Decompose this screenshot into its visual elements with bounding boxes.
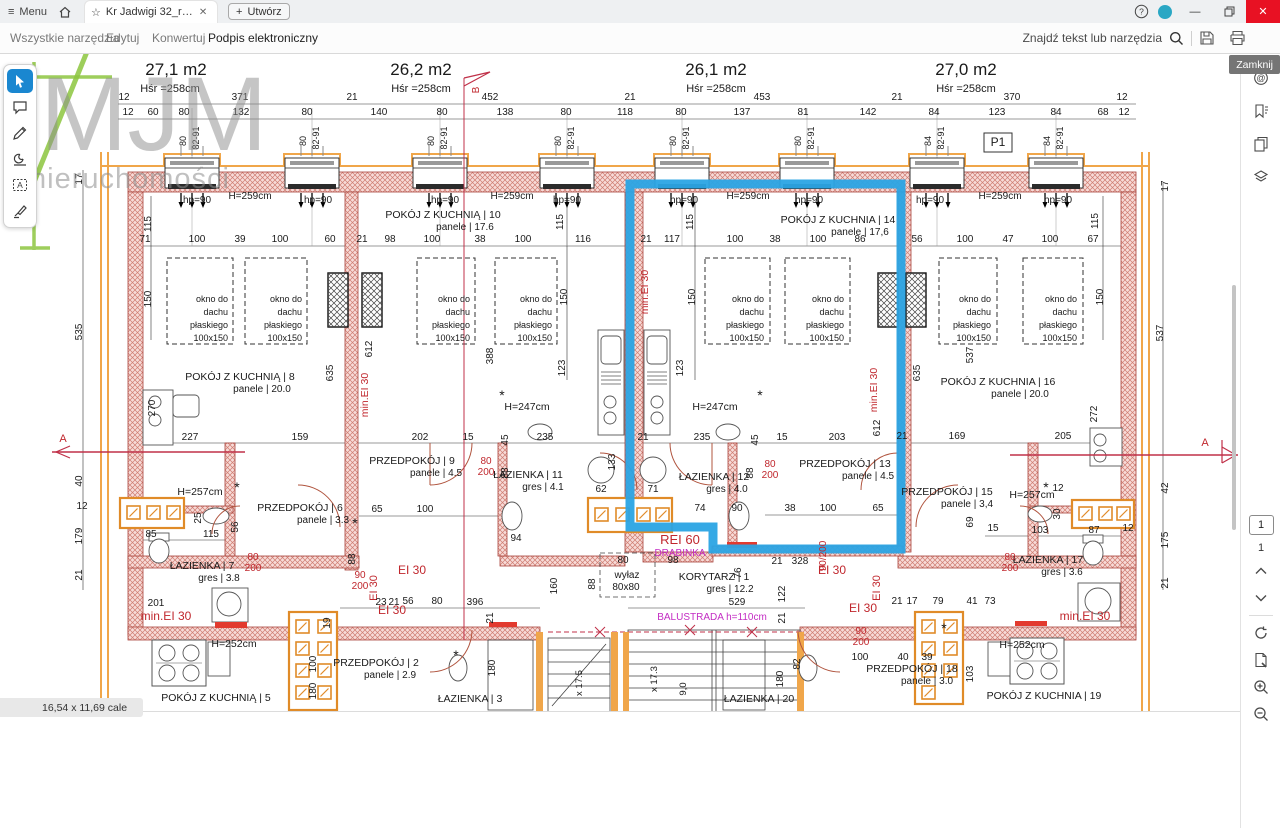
svg-text:dachu: dachu [819,307,844,317]
svg-text:PRZEDPOKÓJ | 6: PRZEDPOKÓJ | 6 [257,501,343,514]
svg-text:H=247cm: H=247cm [504,401,549,413]
svg-text:H=259cm: H=259cm [490,191,533,202]
svg-text:76: 76 [733,567,744,579]
svg-text:wyłaz: wyłaz [613,570,639,581]
svg-text:537: 537 [965,346,976,363]
svg-text:116: 116 [575,234,591,245]
pages-button[interactable] [1250,134,1272,154]
svg-text:12: 12 [1052,483,1064,494]
svg-text:*: * [1043,479,1049,495]
svg-text:POKÓJ Z KUCHNIĄ | 5: POKÓJ Z KUCHNIĄ | 5 [161,691,271,704]
svg-text:60: 60 [324,234,336,245]
tab-title: Kr Jadwigi 32_rzut c... [106,6,194,18]
svg-text:hp=90: hp=90 [670,195,699,206]
svg-text:235: 235 [537,432,554,443]
svg-text:87: 87 [1088,525,1100,536]
svg-text:płaskiego: płaskiego [432,320,470,330]
svg-text:gres | 3.6: gres | 3.6 [1041,567,1083,578]
svg-text:21: 21 [637,432,649,443]
svg-text:115: 115 [203,529,219,540]
svg-text:min.EI 30: min.EI 30 [359,373,371,418]
vertical-scrollbar[interactable] [1232,285,1236,530]
svg-text:ŁAZIENKA | 3: ŁAZIENKA | 3 [438,693,503,705]
svg-text:100x150: 100x150 [956,333,991,343]
svg-text:160: 160 [549,577,560,594]
svg-text:dachu: dachu [1052,307,1077,317]
menu-button[interactable]: ≡ Menu [8,0,47,23]
page-view-icon [1253,652,1269,668]
svg-text:15: 15 [776,432,788,443]
svg-text:123: 123 [675,359,686,376]
svg-text:26,2 m2: 26,2 m2 [390,60,451,79]
svg-text:15: 15 [987,523,999,534]
svg-text:201: 201 [148,598,165,609]
svg-text:min.EI 30: min.EI 30 [141,609,192,623]
svg-text:82-91: 82-91 [191,126,201,149]
pages-icon [1253,136,1269,152]
svg-text:68: 68 [1097,107,1109,118]
svg-text:21: 21 [1160,577,1171,589]
svg-text:dachu: dachu [277,307,302,317]
sign-tool-button[interactable] [7,147,33,171]
svg-text:612: 612 [364,340,375,357]
zoom-in-icon [1253,679,1269,695]
svg-text:panele | 3.0: panele | 3.0 [901,676,954,687]
svg-text:203: 203 [829,432,846,443]
rotate-button[interactable] [1250,623,1272,643]
svg-text:80: 80 [617,555,629,566]
svg-text:płaskiego: płaskiego [264,320,302,330]
svg-text:635: 635 [325,364,336,381]
svg-text:40: 40 [897,652,909,663]
svg-text:PRZEDPOKÓJ | 13: PRZEDPOKÓJ | 13 [799,457,891,470]
svg-text:272: 272 [1089,405,1100,422]
right-rail: @ 1 [1240,55,1280,828]
menu-edit[interactable]: Edytuj [106,23,139,53]
svg-text:138: 138 [497,107,514,118]
svg-text:17: 17 [906,596,918,607]
menu-label: Menu [19,6,47,18]
svg-text:80: 80 [1004,552,1016,563]
svg-text:81: 81 [797,107,809,118]
avatar[interactable] [1148,0,1182,23]
svg-text:H=259cm: H=259cm [726,191,769,202]
svg-text:gres | 12.2: gres | 12.2 [706,584,754,595]
svg-text:82-91: 82-91 [566,126,576,149]
svg-text:200: 200 [853,637,870,648]
svg-text:80: 80 [247,552,259,563]
svg-text:*: * [499,387,505,403]
svg-text:12: 12 [122,107,134,118]
svg-text:47: 47 [1002,234,1014,245]
svg-text:80: 80 [426,136,436,146]
svg-text:x 17.3: x 17.3 [649,666,660,692]
create-button[interactable]: + Utwórz [228,3,290,20]
svg-text:65: 65 [872,503,884,514]
svg-text:21: 21 [74,569,85,581]
rail-divider [1249,615,1273,616]
svg-text:17: 17 [1160,180,1171,192]
svg-text:88: 88 [745,467,756,479]
svg-text:DRABINKA: DRABINKA [654,548,705,559]
svg-text:103: 103 [965,665,976,682]
svg-text:okno do: okno do [959,294,991,304]
svg-text:hp=90: hp=90 [431,195,460,206]
document-size-badge: 16,54 x 11,69 cale [0,698,143,717]
zoom-in-button[interactable] [1250,677,1272,697]
svg-text:180: 180 [775,670,786,687]
svg-text:115: 115 [685,214,696,230]
svg-text:82-91: 82-91 [439,126,449,149]
svg-text:80: 80 [764,459,776,470]
layers-button[interactable] [1250,167,1272,187]
svg-text:115: 115 [143,216,154,232]
svg-text:100: 100 [1042,234,1059,245]
svg-text:84: 84 [1050,107,1062,118]
svg-text:115: 115 [555,214,566,230]
svg-text:panele | 4.5: panele | 4.5 [410,468,463,479]
svg-text:okno do: okno do [196,294,228,304]
draw-tool-button[interactable] [7,121,33,145]
svg-text:100: 100 [417,504,434,515]
svg-text:100x150: 100x150 [193,333,228,343]
page-total: 1 [1258,542,1264,554]
svg-text:27,0 m2: 27,0 m2 [935,60,996,79]
svg-text:gres | 4.1: gres | 4.1 [522,482,564,493]
restore-button[interactable] [1212,0,1246,23]
svg-text:179: 179 [74,527,85,544]
svg-text:84: 84 [1042,136,1052,146]
svg-text:B: B [471,86,482,93]
svg-text:94: 94 [510,533,522,544]
pdf-toolbar: Wszystkie narzędzia Edytuj Konwertuj Pod… [0,23,1280,54]
svg-text:21: 21 [640,234,652,245]
svg-text:80: 80 [178,136,188,146]
svg-text:100: 100 [820,503,837,514]
rotate-icon [1253,625,1269,641]
svg-text:80: 80 [668,136,678,146]
svg-text:80: 80 [178,107,190,118]
svg-text:100x150: 100x150 [729,333,764,343]
comment-tool-button[interactable] [7,95,33,119]
home-icon [58,5,72,19]
printer-icon [1229,30,1246,46]
svg-text:42: 42 [1160,482,1171,494]
svg-text:73: 73 [984,596,996,607]
svg-text:90: 90 [354,570,366,581]
svg-text:90: 90 [731,503,743,514]
svg-text:hp=90: hp=90 [916,195,945,206]
svg-text:POKÓJ Z KUCHNIA | 16: POKÓJ Z KUCHNIA | 16 [941,375,1056,388]
svg-text:EI 30: EI 30 [398,563,426,577]
svg-text:132: 132 [233,107,250,118]
svg-text:56: 56 [230,521,241,533]
search-box[interactable]: Znajdź tekst lub narzędzia [1023,23,1184,53]
svg-text:ŁAZIENKA | 7: ŁAZIENKA | 7 [170,560,235,572]
highlight-tool-button[interactable] [7,199,33,223]
svg-text:9,0: 9,0 [678,682,689,695]
svg-text:dachu: dachu [739,307,764,317]
menu-convert[interactable]: Konwertuj [152,23,205,53]
svg-text:67: 67 [1087,234,1099,245]
text-tool-button[interactable]: A [7,173,33,197]
svg-text:21: 21 [891,596,903,607]
svg-text:200: 200 [352,581,369,592]
svg-text:okno do: okno do [1045,294,1077,304]
svg-text:71: 71 [647,484,659,495]
svg-text:H=247cm: H=247cm [692,401,737,413]
chevron-up-icon [1255,567,1267,575]
svg-text:*: * [352,515,358,531]
svg-text:74: 74 [694,503,706,514]
svg-text:88: 88 [500,467,511,479]
svg-text:235: 235 [694,432,711,443]
svg-text:panele | 20.0: panele | 20.0 [991,389,1049,400]
svg-text:A: A [59,433,67,445]
svg-text:71: 71 [139,234,151,245]
svg-text:123: 123 [989,107,1006,118]
cursor-icon [13,74,27,88]
svg-text:100: 100 [308,655,319,672]
bookmark-icon [1253,103,1269,119]
svg-text:x 17.5: x 17.5 [574,670,585,696]
svg-text:panele | 2.9: panele | 2.9 [364,670,417,681]
svg-text:140: 140 [371,107,388,118]
svg-text:100: 100 [957,234,974,245]
svg-text:12: 12 [118,92,130,103]
svg-text:65: 65 [371,504,383,515]
restore-icon [1224,6,1235,17]
svg-text:100x150: 100x150 [267,333,302,343]
svg-text:H=259cm: H=259cm [228,191,271,202]
svg-text:88: 88 [587,578,598,590]
home-button[interactable] [58,0,72,23]
hamburger-icon: ≡ [8,6,14,18]
tab-close-icon[interactable]: ✕ [199,7,207,18]
plus-icon: + [236,6,242,18]
svg-text:dachu: dachu [527,307,552,317]
svg-text:41: 41 [966,596,978,607]
svg-text:529: 529 [729,597,746,608]
floorplan-canvas[interactable]: 27,1 m2Hśr =258cm26,2 m2Hśr =258cm26,1 m… [0,55,1240,712]
svg-text:A: A [17,180,23,190]
svg-text:hp=90: hp=90 [1044,195,1073,206]
svg-text:dachu: dachu [966,307,991,317]
svg-text:38: 38 [769,234,781,245]
svg-text:panele | 3,4: panele | 3,4 [941,499,994,510]
svg-text:80: 80 [553,136,563,146]
svg-text:98: 98 [384,234,396,245]
svg-text:60: 60 [147,107,159,118]
svg-text:panele | 20.0: panele | 20.0 [233,384,291,395]
svg-text:115: 115 [1090,213,1101,229]
svg-text:117: 117 [664,234,680,245]
toolbar-divider [1191,31,1192,46]
svg-text:202: 202 [412,432,429,443]
svg-text:39: 39 [234,234,246,245]
svg-text:12: 12 [1122,523,1134,534]
svg-text:płaskiego: płaskiego [1039,320,1077,330]
svg-text:123: 123 [557,359,568,376]
svg-text:612: 612 [872,419,883,436]
svg-text:dachu: dachu [203,307,228,317]
svg-text:min.EI 30: min.EI 30 [639,270,651,315]
svg-text:POKÓJ Z KUCHNIĄ | 10: POKÓJ Z KUCHNIĄ | 10 [385,208,500,221]
svg-text:270: 270 [147,399,158,416]
bookmarks-button[interactable] [1250,101,1272,121]
svg-text:*: * [234,479,240,495]
svg-text:635: 635 [912,364,923,381]
svg-text:80: 80 [301,107,313,118]
svg-text:180: 180 [487,659,498,676]
page-number-input[interactable] [1249,515,1274,535]
highlighter-icon [12,203,28,219]
layers-icon [1253,169,1269,185]
svg-text:21: 21 [388,597,400,608]
svg-text:150: 150 [687,288,698,305]
svg-text:200: 200 [762,470,779,481]
svg-text:100: 100 [810,234,827,245]
svg-text:Hśr =258cm: Hśr =258cm [140,83,200,95]
svg-text:62: 62 [595,484,607,495]
svg-text:płaskiego: płaskiego [514,320,552,330]
svg-text:80: 80 [675,107,687,118]
svg-text:ŁAZIENKA | 20: ŁAZIENKA | 20 [724,693,795,705]
svg-text:100x150: 100x150 [1042,333,1077,343]
svg-text:86: 86 [854,234,866,245]
svg-text:hp=90: hp=90 [304,195,333,206]
svg-text:PRZEDPOKÓJ | 15: PRZEDPOKÓJ | 15 [901,485,993,498]
svg-text:21: 21 [624,92,636,103]
svg-text:15: 15 [462,432,474,443]
svg-text:okno do: okno do [270,294,302,304]
svg-text:21: 21 [771,556,783,567]
svg-text:82-91: 82-91 [936,126,946,149]
svg-text:100: 100 [424,234,441,245]
next-page-button[interactable] [1250,588,1272,608]
svg-text:ŁAZIENKA | 17: ŁAZIENKA | 17 [1013,554,1084,566]
svg-text:180: 180 [308,682,319,699]
svg-text:388: 388 [485,347,496,364]
svg-text:@: @ [1256,73,1265,83]
svg-text:12: 12 [76,501,88,512]
svg-text:gres | 4.0: gres | 4.0 [706,484,748,495]
svg-text:537: 537 [1155,324,1166,341]
page-view-button[interactable] [1250,650,1272,670]
svg-text:100: 100 [189,234,206,245]
app-window: { "titlebar": { "menu_label": "Menu", "t… [0,0,1280,828]
search-icon [1169,31,1184,46]
svg-text:panele | 17.6: panele | 17.6 [436,222,494,233]
signature-icon [12,151,28,167]
svg-text:21: 21 [346,92,358,103]
svg-text:H=252cm: H=252cm [999,639,1044,651]
menu-all-tools[interactable]: Wszystkie narzędzia [10,23,119,53]
svg-text:*: * [453,647,459,663]
svg-text:PRZEDPOKÓJ | 2: PRZEDPOKÓJ | 2 [333,656,419,669]
svg-text:80: 80 [436,107,448,118]
save-button[interactable] [1196,28,1218,48]
svg-text:12: 12 [1118,107,1130,118]
zoom-out-button[interactable] [1250,704,1272,724]
svg-text:27,1 m2: 27,1 m2 [145,60,206,79]
previous-page-button[interactable] [1250,561,1272,581]
svg-text:80: 80 [298,136,308,146]
minimize-button[interactable]: — [1178,0,1212,23]
menu-esign[interactable]: Podpis elektroniczny [208,23,318,53]
select-tool-button[interactable] [7,69,33,93]
svg-text:21: 21 [777,612,788,624]
print-button[interactable] [1226,28,1248,48]
left-tools-panel: A [3,64,37,228]
svg-text:137: 137 [734,107,751,118]
svg-text:56: 56 [911,234,923,245]
svg-text:169: 169 [949,431,966,442]
svg-text:17: 17 [74,173,85,185]
svg-text:Hśr =258cm: Hśr =258cm [391,83,451,95]
svg-text:okno do: okno do [520,294,552,304]
create-label: Utwórz [247,6,281,18]
svg-text:EI 30: EI 30 [849,601,877,615]
svg-text:56: 56 [402,596,414,607]
svg-text:płaskiego: płaskiego [953,320,991,330]
svg-text:100: 100 [852,652,869,663]
svg-text:płaskiego: płaskiego [806,320,844,330]
comment-icon [12,99,28,115]
svg-text:142: 142 [860,107,877,118]
svg-text:dachu: dachu [445,307,470,317]
svg-text:gres | 3.8: gres | 3.8 [198,573,240,584]
svg-text:150: 150 [559,288,570,305]
svg-text:PRZEDPOKÓJ | 9: PRZEDPOKÓJ | 9 [369,454,455,467]
help-icon: ? [1134,4,1149,19]
svg-text:panele | 4.5: panele | 4.5 [842,471,895,482]
svg-text:hp=90: hp=90 [183,195,212,206]
svg-text:84: 84 [923,136,933,146]
zoom-out-icon [1253,706,1269,722]
save-icon [1199,30,1215,46]
chevron-down-icon [1255,594,1267,602]
svg-text:40: 40 [74,475,85,487]
svg-text:Hśr =258cm: Hśr =258cm [936,83,996,95]
svg-text:371: 371 [232,92,249,103]
svg-text:H=259cm: H=259cm [978,191,1021,202]
svg-text:39: 39 [921,652,933,663]
document-tab[interactable]: ☆ Kr Jadwigi 32_rzut c... ✕ [84,0,218,23]
svg-text:80: 80 [793,136,803,146]
svg-text:H=257cm: H=257cm [177,486,222,498]
svg-text:85: 85 [145,529,157,540]
search-label: Znajdź tekst lub narzędzia [1023,31,1162,45]
svg-text:okno do: okno do [732,294,764,304]
svg-text:175: 175 [1160,531,1171,548]
svg-text:30: 30 [1052,508,1063,520]
svg-text:100x150: 100x150 [435,333,470,343]
svg-text:452: 452 [482,92,499,103]
svg-text:21: 21 [356,234,368,245]
svg-text:227: 227 [182,432,199,443]
svg-text:38: 38 [474,234,486,245]
svg-text:82: 82 [792,658,803,670]
svg-text:POKÓJ Z KUCHNIA | 19: POKÓJ Z KUCHNIA | 19 [987,689,1102,702]
svg-text:118: 118 [617,107,633,118]
close-window-button[interactable]: ✕ [1246,0,1280,23]
svg-text:okno do: okno do [438,294,470,304]
svg-text:21: 21 [896,431,908,442]
svg-text:okno do: okno do [812,294,844,304]
svg-text:90/200: 90/200 [818,540,829,571]
svg-text:159: 159 [292,432,309,443]
